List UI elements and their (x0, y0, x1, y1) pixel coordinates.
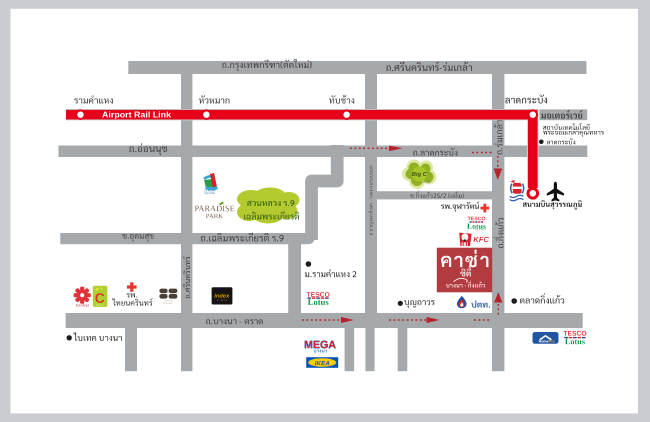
svg-text:HomePro: HomePro (539, 339, 556, 343)
svg-text:Airport Rail Link: Airport Rail Link (102, 111, 171, 120)
